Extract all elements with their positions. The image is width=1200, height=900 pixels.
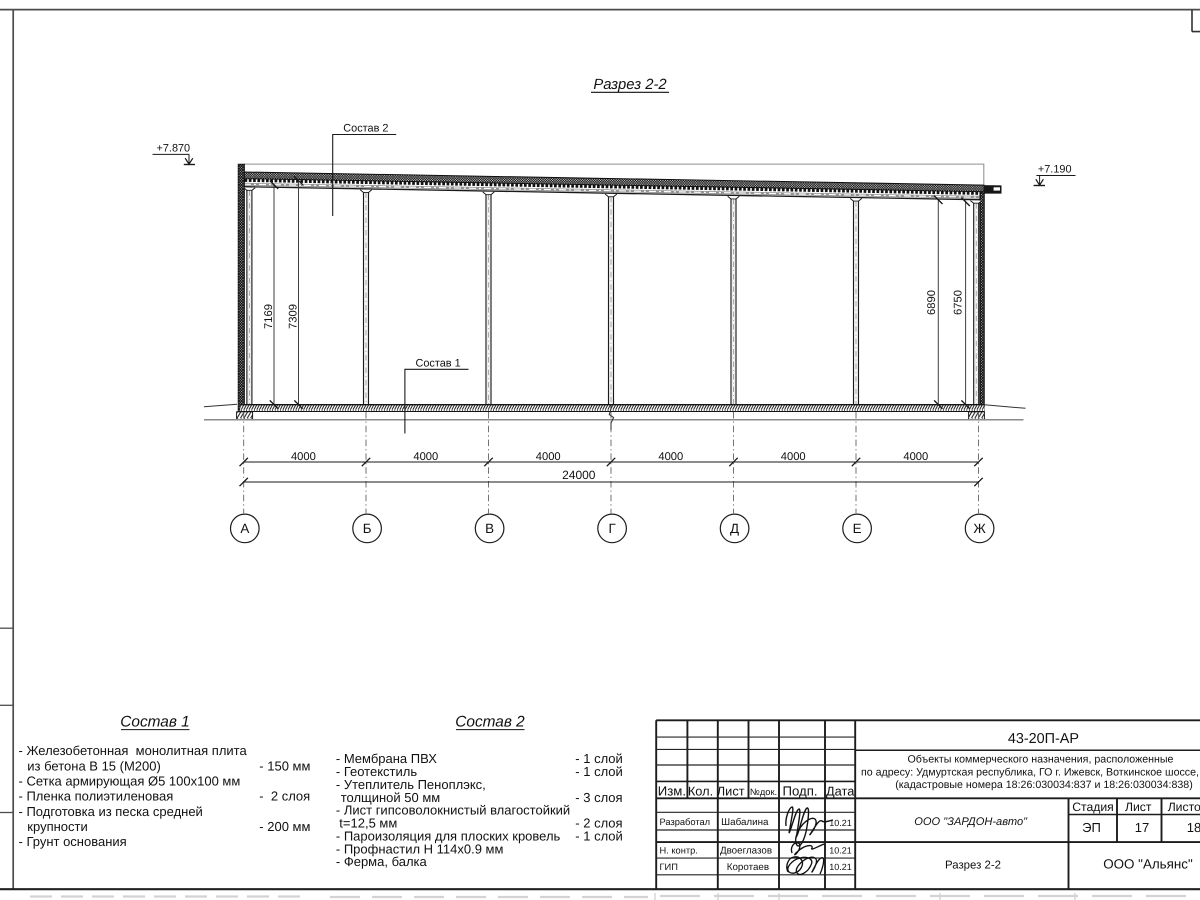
svg-text:4000: 4000 (536, 451, 561, 463)
svg-text:Коротаев: Коротаев (727, 862, 769, 873)
svg-text:Состав 2: Состав 2 (455, 713, 525, 730)
svg-text:№док.: №док. (750, 787, 777, 797)
svg-text:10.21: 10.21 (829, 818, 852, 828)
svg-text:4000: 4000 (903, 451, 928, 463)
svg-text:Состав 2: Состав 2 (343, 122, 388, 134)
svg-text:18: 18 (1187, 820, 1200, 835)
svg-text:Разработал: Разработал (660, 817, 711, 827)
svg-text:7309: 7309 (287, 304, 299, 329)
svg-text:4000: 4000 (781, 451, 806, 463)
svg-text:4000: 4000 (413, 451, 438, 463)
svg-text:17: 17 (1135, 820, 1149, 835)
svg-text:Изм.: Изм. (658, 784, 686, 799)
svg-text:Состав 1: Состав 1 (416, 357, 461, 369)
svg-text:А: А (240, 521, 249, 536)
svg-text:Д: Д (730, 521, 739, 536)
svg-text:Дата: Дата (826, 784, 855, 799)
svg-text:+7.870: +7.870 (157, 143, 191, 155)
svg-text:Двоеглазов: Двоеглазов (720, 845, 772, 856)
svg-text:- 1 слой: - 1 слой (575, 828, 623, 843)
svg-text:- 2 слоя: - 2 слоя (259, 789, 310, 804)
svg-text:6890: 6890 (926, 290, 938, 315)
svg-text:Стадия: Стадия (1072, 800, 1114, 814)
svg-text:4000: 4000 (291, 451, 316, 463)
svg-text:Кол.: Кол. (688, 784, 713, 799)
svg-text:- Грунт основания: - Грунт основания (19, 834, 127, 849)
svg-text:- 3 слоя: - 3 слоя (575, 790, 622, 805)
svg-text:- Сетка армирующая Ø5 100х100: - Сетка армирующая Ø5 100х100 мм (19, 774, 241, 789)
svg-text:Листов: Листов (1168, 800, 1200, 814)
svg-text:Лист: Лист (1125, 800, 1152, 814)
svg-text:по адресу: Удмуртская республи: по адресу: Удмуртская республика, ГО г. … (861, 767, 1199, 779)
svg-text:Подп.: Подп. (782, 784, 817, 799)
svg-text:Разрез 2-2: Разрез 2-2 (593, 77, 667, 93)
svg-text:ЭП: ЭП (1082, 820, 1101, 835)
svg-text:(кадастровые номера 18:26:0300: (кадастровые номера 18:26:030034:837 и 1… (895, 779, 1193, 791)
svg-text:6750: 6750 (953, 290, 965, 315)
svg-text:ООО "Альянс": ООО "Альянс" (1103, 856, 1193, 871)
svg-text:Объекты коммерческого назначен: Объекты коммерческого назначения, распол… (908, 754, 1174, 766)
svg-text:Г: Г (608, 521, 615, 536)
svg-text:ООО "ЗАРДОН-авто": ООО "ЗАРДОН-авто" (914, 816, 1028, 828)
svg-text:Разрез 2-2: Разрез 2-2 (945, 859, 1001, 871)
svg-text:- 1 слой: - 1 слой (575, 764, 623, 779)
svg-text:+7.190: +7.190 (1038, 164, 1072, 176)
svg-text:- Железобетонная монолитная п: - Железобетонная монолитная плита (19, 743, 248, 758)
svg-text:ГИП: ГИП (660, 862, 678, 872)
svg-text:4000: 4000 (658, 451, 683, 463)
svg-text:Ж: Ж (973, 521, 986, 536)
svg-text:Б: Б (363, 521, 372, 536)
svg-text:10.21: 10.21 (829, 862, 852, 872)
svg-text:43-20П-АР: 43-20П-АР (1008, 731, 1079, 747)
svg-text:Е: Е (853, 521, 862, 536)
svg-text:7169: 7169 (263, 304, 275, 329)
svg-text:из бетона В 15 (М200): из бетона В 15 (М200) (27, 758, 161, 773)
svg-text:- Подготовка из песка средней: - Подготовка из песка средней (19, 804, 203, 819)
svg-text:- 200 мм: - 200 мм (259, 819, 310, 834)
svg-text:- 150 мм: - 150 мм (259, 758, 310, 773)
svg-text:В: В (485, 521, 494, 536)
svg-text:10.21: 10.21 (829, 846, 852, 856)
svg-text:- Пленка полиэтиленовая: - Пленка полиэтиленовая (19, 789, 174, 804)
svg-text:Н. контр.: Н. контр. (660, 845, 698, 855)
svg-text:- Ферма, балка: - Ферма, балка (336, 854, 428, 869)
svg-text:крупности: крупности (27, 819, 87, 834)
svg-text:24000: 24000 (562, 468, 596, 482)
svg-text:Шабалина: Шабалина (721, 817, 769, 828)
svg-text:Состав 1: Состав 1 (120, 713, 189, 730)
svg-text:Лист: Лист (717, 784, 745, 799)
